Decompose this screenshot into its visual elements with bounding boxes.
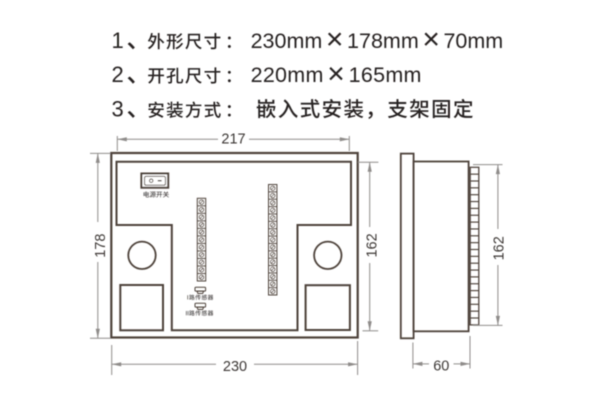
svg-text:217: 217	[221, 132, 245, 148]
svg-text:220mm×165mm: 220mm×165mm	[251, 57, 422, 90]
svg-text:162: 162	[492, 236, 508, 260]
svg-text:60: 60	[433, 359, 449, 375]
svg-text:230mm×178mm×70mm: 230mm×178mm×70mm	[251, 23, 504, 56]
svg-text:230: 230	[223, 359, 247, 375]
svg-text:1: 1	[112, 28, 124, 53]
svg-text:162: 162	[364, 233, 380, 257]
svg-text:2: 2	[112, 62, 124, 87]
svg-text:3: 3	[112, 96, 124, 121]
svg-text:178: 178	[93, 234, 109, 258]
